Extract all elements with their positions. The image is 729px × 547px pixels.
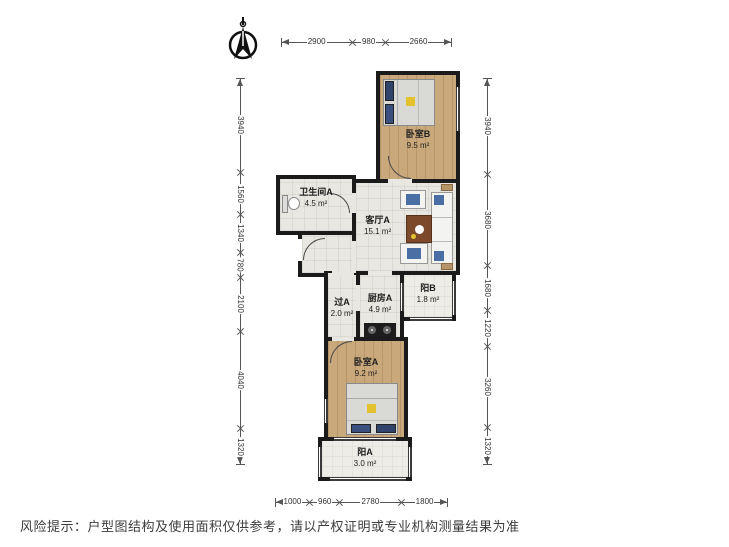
dimension-value: 3680 [483,210,491,230]
room-area: 3.0 m² [354,459,377,469]
sofa-icon [431,192,453,264]
room-area: 9.2 m² [354,369,379,379]
door-opening [388,179,412,183]
window-icon [318,447,322,477]
passage-opening [356,285,360,311]
window-icon [324,399,328,423]
window-icon [330,477,406,481]
dimension-value: 1560 [236,184,244,204]
room-name: 卧室B [406,129,431,141]
window-icon [400,283,404,311]
room-balcony-b: 阳B 1.8 m² [400,271,456,321]
room-living-a: 客厅A 15.1 m² [352,179,460,275]
room-area: 15.1 m² [364,227,391,237]
compass-north-icon [226,15,260,65]
room-area: 9.5 m² [406,141,431,151]
dimension-value: 3940 [483,116,491,136]
disclaimer-text: 风险提示：户型图结构及使用面积仅供参考，请以产权证明或专业机构测量结果为准 [20,516,520,535]
dimension-line-top: 29009802660 [281,35,452,49]
room-hall-a: 过A 2.0 m² [324,271,360,341]
entry-door-opening [298,239,302,261]
bed-icon [383,79,435,126]
armchair-icon [400,190,426,209]
dimension-value: 3940 [236,115,244,135]
toilet-icon [288,197,300,210]
dimension-value: 1000 [283,498,303,506]
dimension-value: 960 [317,498,332,506]
floor-plan-canvas: 卧室B 9.5 m² 客厅A 15.1 m² [0,0,729,547]
dimension-value: 1220 [483,319,491,339]
room-label-bathroom-a: 卫生间A 4.5 m² [299,187,333,209]
dimension-line-left: 394015601340780210040401320 [232,78,248,465]
room-label-balcony-b: 阳B 1.8 m² [417,283,440,305]
room-name: 客厅A [364,215,391,227]
window-icon [410,317,452,321]
window-icon [452,281,456,315]
bed-icon [346,383,398,435]
dimension-line-bottom: 100096027801800 [275,495,448,509]
room-label-bedroom-a: 卧室A 9.2 m² [354,357,379,379]
dimension-value: 2900 [307,38,327,46]
passage-opening [368,271,392,275]
room-name: 卫生间A [299,187,333,199]
passage-opening [352,241,356,273]
dimension-value: 2660 [409,38,429,46]
room-name: 厨房A [368,293,393,305]
room-label-hall-a: 过A 2.0 m² [331,297,354,319]
door-arc-icon [388,156,411,179]
armchair-icon [400,243,428,264]
side-table-icon [441,263,453,270]
dimension-value: 3260 [483,377,491,397]
room-area: 4.9 m² [368,305,393,315]
dimension-value: 1320 [483,436,491,456]
dimension-value: 4040 [236,370,244,390]
dimension-value: 2780 [360,498,380,506]
passage-opening [332,271,354,275]
dimension-value: 980 [361,38,376,46]
dimension-value: 2100 [236,294,244,314]
window-icon [334,437,396,441]
dimension-value: 1320 [236,437,244,457]
room-name: 过A [331,297,354,309]
coffee-table-icon [406,215,432,243]
dimension-value: 1340 [236,224,244,244]
room-name: 卧室A [354,357,379,369]
dimension-value: 780 [236,257,244,272]
dimension-line-right: 394036801680122032601320 [479,78,495,465]
window-icon [456,87,460,131]
door-arc-icon [330,341,352,363]
room-name: 阳B [417,283,440,295]
door-arc-icon [303,238,325,260]
dimension-value: 1800 [415,498,435,506]
side-table-icon [441,184,453,191]
room-area: 1.8 m² [417,295,440,305]
room-bedroom-a: 卧室A 9.2 m² [324,337,408,441]
room-bathroom-a: 卫生间A 4.5 m² [276,175,356,235]
room-label-bedroom-b: 卧室B 9.5 m² [406,129,431,151]
stove-icon [364,323,396,337]
room-bedroom-b: 卧室B 9.5 m² [376,71,460,183]
room-label-living-a: 客厅A 15.1 m² [364,215,391,237]
room-area: 4.5 m² [299,199,333,209]
room-label-balcony-a: 阳A 3.0 m² [354,447,377,469]
room-label-kitchen-a: 厨房A 4.9 m² [368,293,393,315]
room-balcony-a: 阳A 3.0 m² [318,437,412,481]
dimension-value: 1680 [483,278,491,298]
window-icon [408,447,412,477]
door-opening [352,193,356,213]
room-area: 2.0 m² [331,309,354,319]
room-name: 阳A [354,447,377,459]
room-kitchen-a: 厨房A 4.9 m² [356,271,404,341]
